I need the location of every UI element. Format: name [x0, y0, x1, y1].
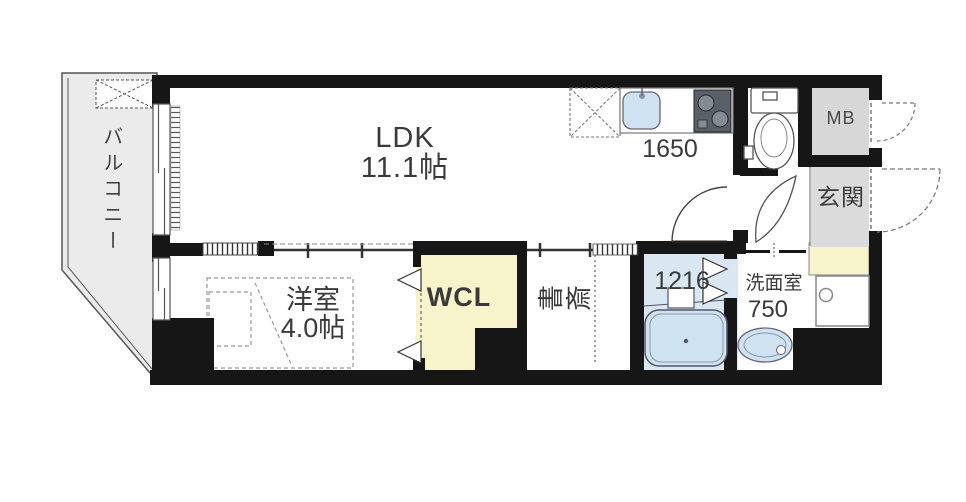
stove: [694, 90, 731, 132]
curtain-box-hatch: [171, 106, 180, 230]
meter-box-label: MB: [827, 109, 856, 128]
mb-door: [869, 100, 915, 148]
wall-block-bottom-left: [152, 318, 214, 378]
entrance-door: [869, 167, 940, 232]
balcony-equipment-hatch: [96, 80, 153, 108]
western-room-name: 洋室: [281, 286, 346, 314]
wall-wcl-left-stub-top: [413, 253, 421, 267]
bathroom-label: 1216: [654, 268, 710, 294]
washroom-size: 750: [748, 298, 788, 323]
wall-top: [155, 75, 882, 88]
wall-washroom-top-a: [742, 250, 770, 253]
washbasin: [738, 328, 792, 362]
wall-mb-bottom: [809, 155, 882, 167]
wall-washroom-top-b: [779, 250, 806, 253]
wall-wcl-study: [517, 253, 527, 372]
washroom-name: 洗面室: [745, 274, 802, 294]
hatch-strip-study: [593, 244, 638, 255]
wall-bath-left: [630, 253, 644, 372]
window-western-room: [153, 258, 170, 320]
study-label: 書斎: [537, 286, 593, 313]
ldk-size: 11.1帖: [361, 153, 449, 183]
paper-holder: [744, 146, 753, 159]
western-room-size: 4.0帖: [281, 314, 346, 342]
ldk-name: LDK: [361, 123, 449, 153]
wall-ldk-south-a: [157, 243, 203, 256]
wall-left-a: [152, 75, 170, 107]
kitchen-sink: [623, 88, 660, 129]
wall-bath-right-a: [724, 253, 737, 259]
wcl-label: WCL: [427, 283, 491, 311]
balcony-label: バルコニー: [100, 126, 121, 256]
kitchen-counter-label: 1650: [642, 136, 698, 162]
wall-kitchen-hall-stub: [733, 230, 748, 243]
wall-kitchen-hall: [733, 75, 748, 175]
wall-wcl-top: [413, 241, 527, 255]
wall-block-bottom-right: [793, 328, 882, 378]
ldk-label: LDK 11.1帖: [361, 123, 449, 183]
sliding-door-western-room: [203, 243, 258, 255]
wall-toilet-right: [798, 75, 812, 167]
kitchen-counter: [620, 88, 733, 133]
floorplan-drawing: [0, 0, 966, 502]
western-room-label: 洋室 4.0帖: [281, 286, 346, 342]
shoe-cabinet: [809, 243, 869, 275]
wall-ldk-south-post: [258, 241, 274, 256]
washing-machine-pan: [816, 276, 869, 326]
floorplan-page: バルコニー LDK 11.1帖 1650 洋室 4.0帖 WCL 書斎 1216…: [0, 0, 966, 502]
window-ldk-balcony: [153, 104, 180, 235]
refrigerator-space: [570, 88, 620, 137]
entrance-label: 玄関: [817, 186, 865, 210]
